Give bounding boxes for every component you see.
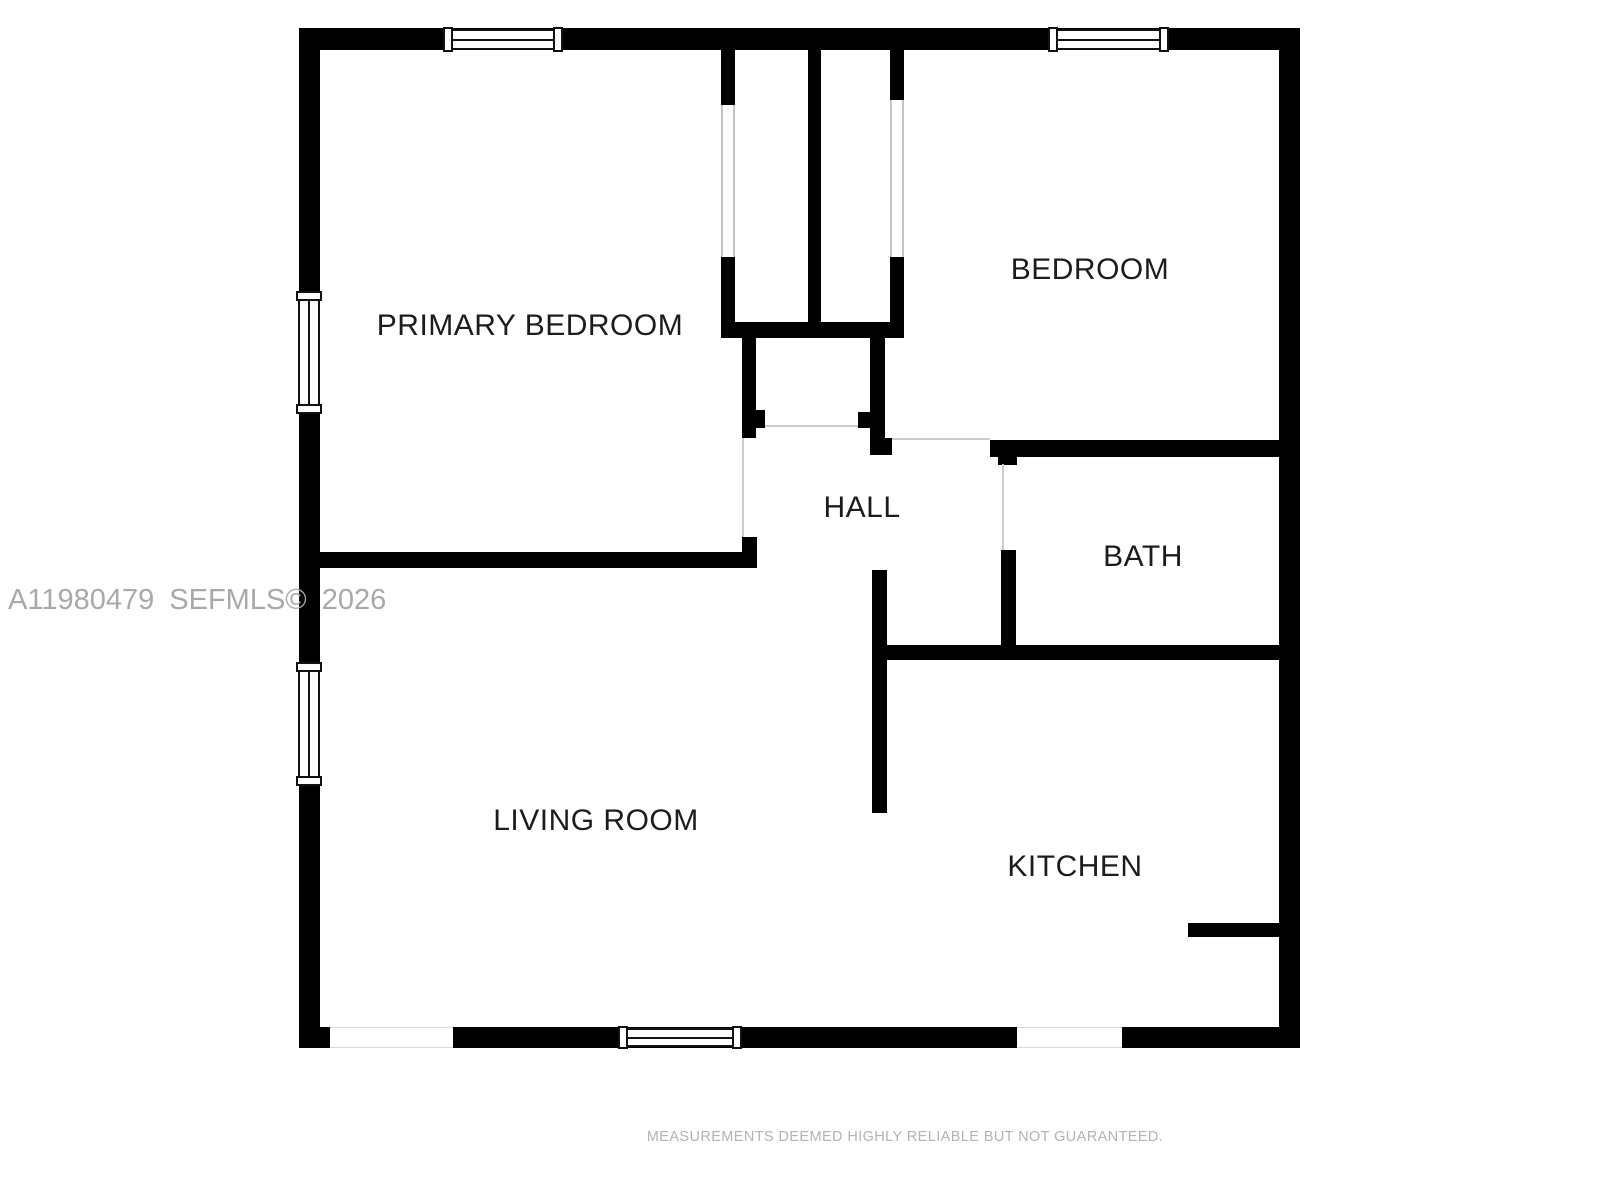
bath-door-opening (1002, 464, 1004, 550)
window-post (443, 27, 453, 52)
closet-bottom-wall (721, 322, 904, 338)
window-post (732, 1026, 742, 1049)
room-label-kitchen: KITCHEN (1007, 850, 1142, 884)
bedroom-bath-wall (990, 440, 1299, 457)
room-label-living-room: LIVING ROOM (493, 804, 699, 838)
window-glass (453, 29, 553, 50)
window-left-lower (296, 662, 322, 786)
bath-left-wall (1001, 550, 1016, 660)
outer-wall-left (299, 28, 320, 1048)
bath-door-jamb (998, 457, 1017, 465)
floor-plan-page: PRIMARY BEDROOM BEDROOM HALL BATH LIVING… (0, 0, 1600, 1200)
kitchen-counter-stub (1188, 923, 1283, 937)
primary-bedroom-door-opening (742, 438, 744, 537)
floor-plan: PRIMARY BEDROOM BEDROOM HALL BATH LIVING… (0, 0, 1600, 1200)
vestibule-right-corner (870, 438, 892, 455)
window-bottom-center (618, 1026, 742, 1049)
vestibule-right-jamb (858, 412, 885, 428)
window-post (553, 27, 563, 52)
closet-right-wall-lower (890, 257, 904, 322)
window-top-left (443, 27, 563, 52)
closet-right-door-opening (890, 100, 904, 257)
bedroom-livingroom-divider (309, 552, 757, 568)
window-glass (298, 301, 320, 404)
closet-center-wall (808, 50, 821, 322)
closet-left-wall-lower (721, 257, 735, 322)
room-label-primary-bedroom: PRIMARY BEDROOM (377, 309, 683, 343)
window-post (296, 776, 322, 786)
window-post (296, 662, 322, 672)
mls-watermark: A11980479 SEFMLS© 2026 (8, 584, 386, 617)
vestibule-left-jamb (742, 410, 765, 428)
window-post (1048, 27, 1058, 52)
closet-right-wall-upper (890, 50, 904, 100)
window-glass (628, 1028, 732, 1047)
window-glass (1058, 29, 1159, 50)
window-post (296, 291, 322, 301)
vestibule-door-opening (765, 425, 858, 427)
bedroom-door-opening (892, 438, 990, 440)
disclaimer-text: MEASUREMENTS DEEMED HIGHLY RELIABLE BUT … (647, 1129, 1163, 1145)
outer-wall-right (1279, 28, 1300, 1048)
window-left-upper (296, 291, 322, 414)
window-top-right (1048, 27, 1169, 52)
kitchen-top-wall (872, 645, 1299, 660)
room-label-bath: BATH (1103, 540, 1183, 574)
window-post (618, 1026, 628, 1049)
opening-bottom-right (1017, 1027, 1122, 1048)
closet-left-wall-upper (721, 50, 735, 105)
window-post (1159, 27, 1169, 52)
window-post (296, 404, 322, 414)
window-glass (298, 672, 320, 776)
room-label-hall: HALL (823, 491, 900, 525)
closet-left-door-opening (721, 105, 735, 257)
livingroom-kitchen-divider (872, 570, 887, 813)
room-label-bedroom: BEDROOM (1011, 253, 1170, 287)
opening-bottom-left (330, 1027, 453, 1048)
